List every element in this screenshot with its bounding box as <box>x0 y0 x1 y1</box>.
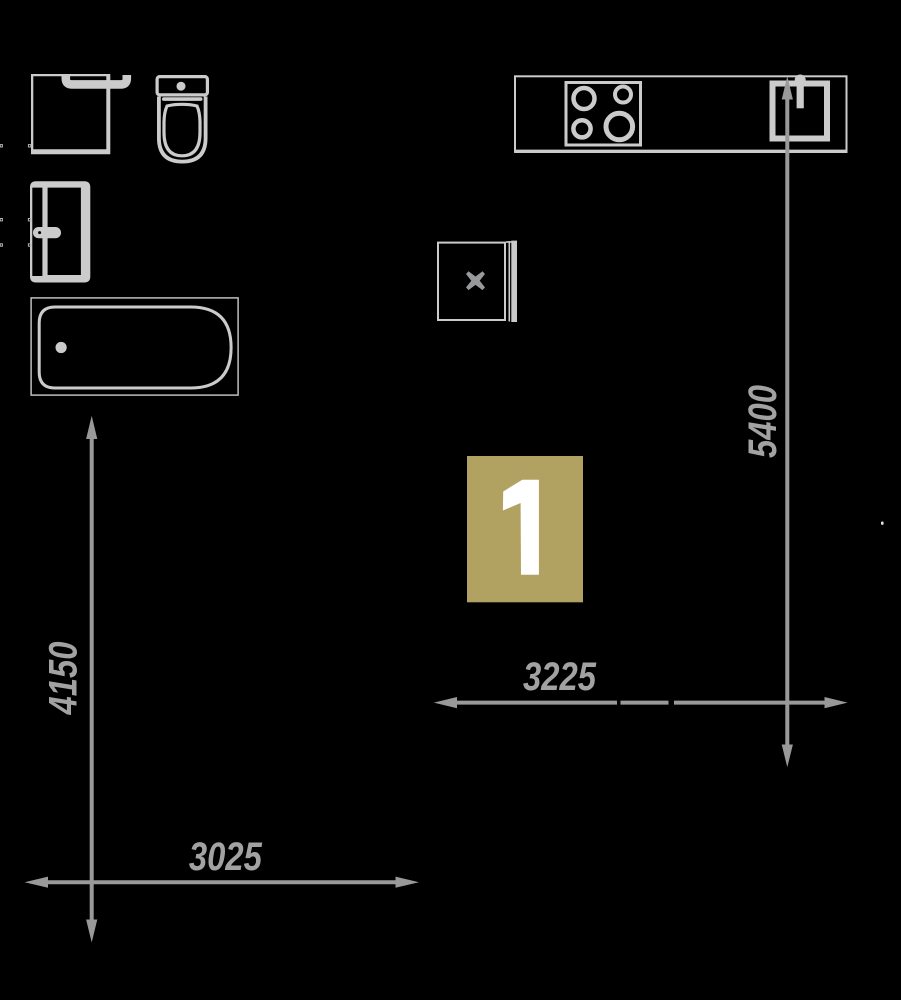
svg-text:3025: 3025 <box>189 834 263 879</box>
svg-text:3225: 3225 <box>523 654 597 699</box>
svg-text:5400: 5400 <box>740 385 785 458</box>
svg-text:4150: 4150 <box>40 642 85 716</box>
